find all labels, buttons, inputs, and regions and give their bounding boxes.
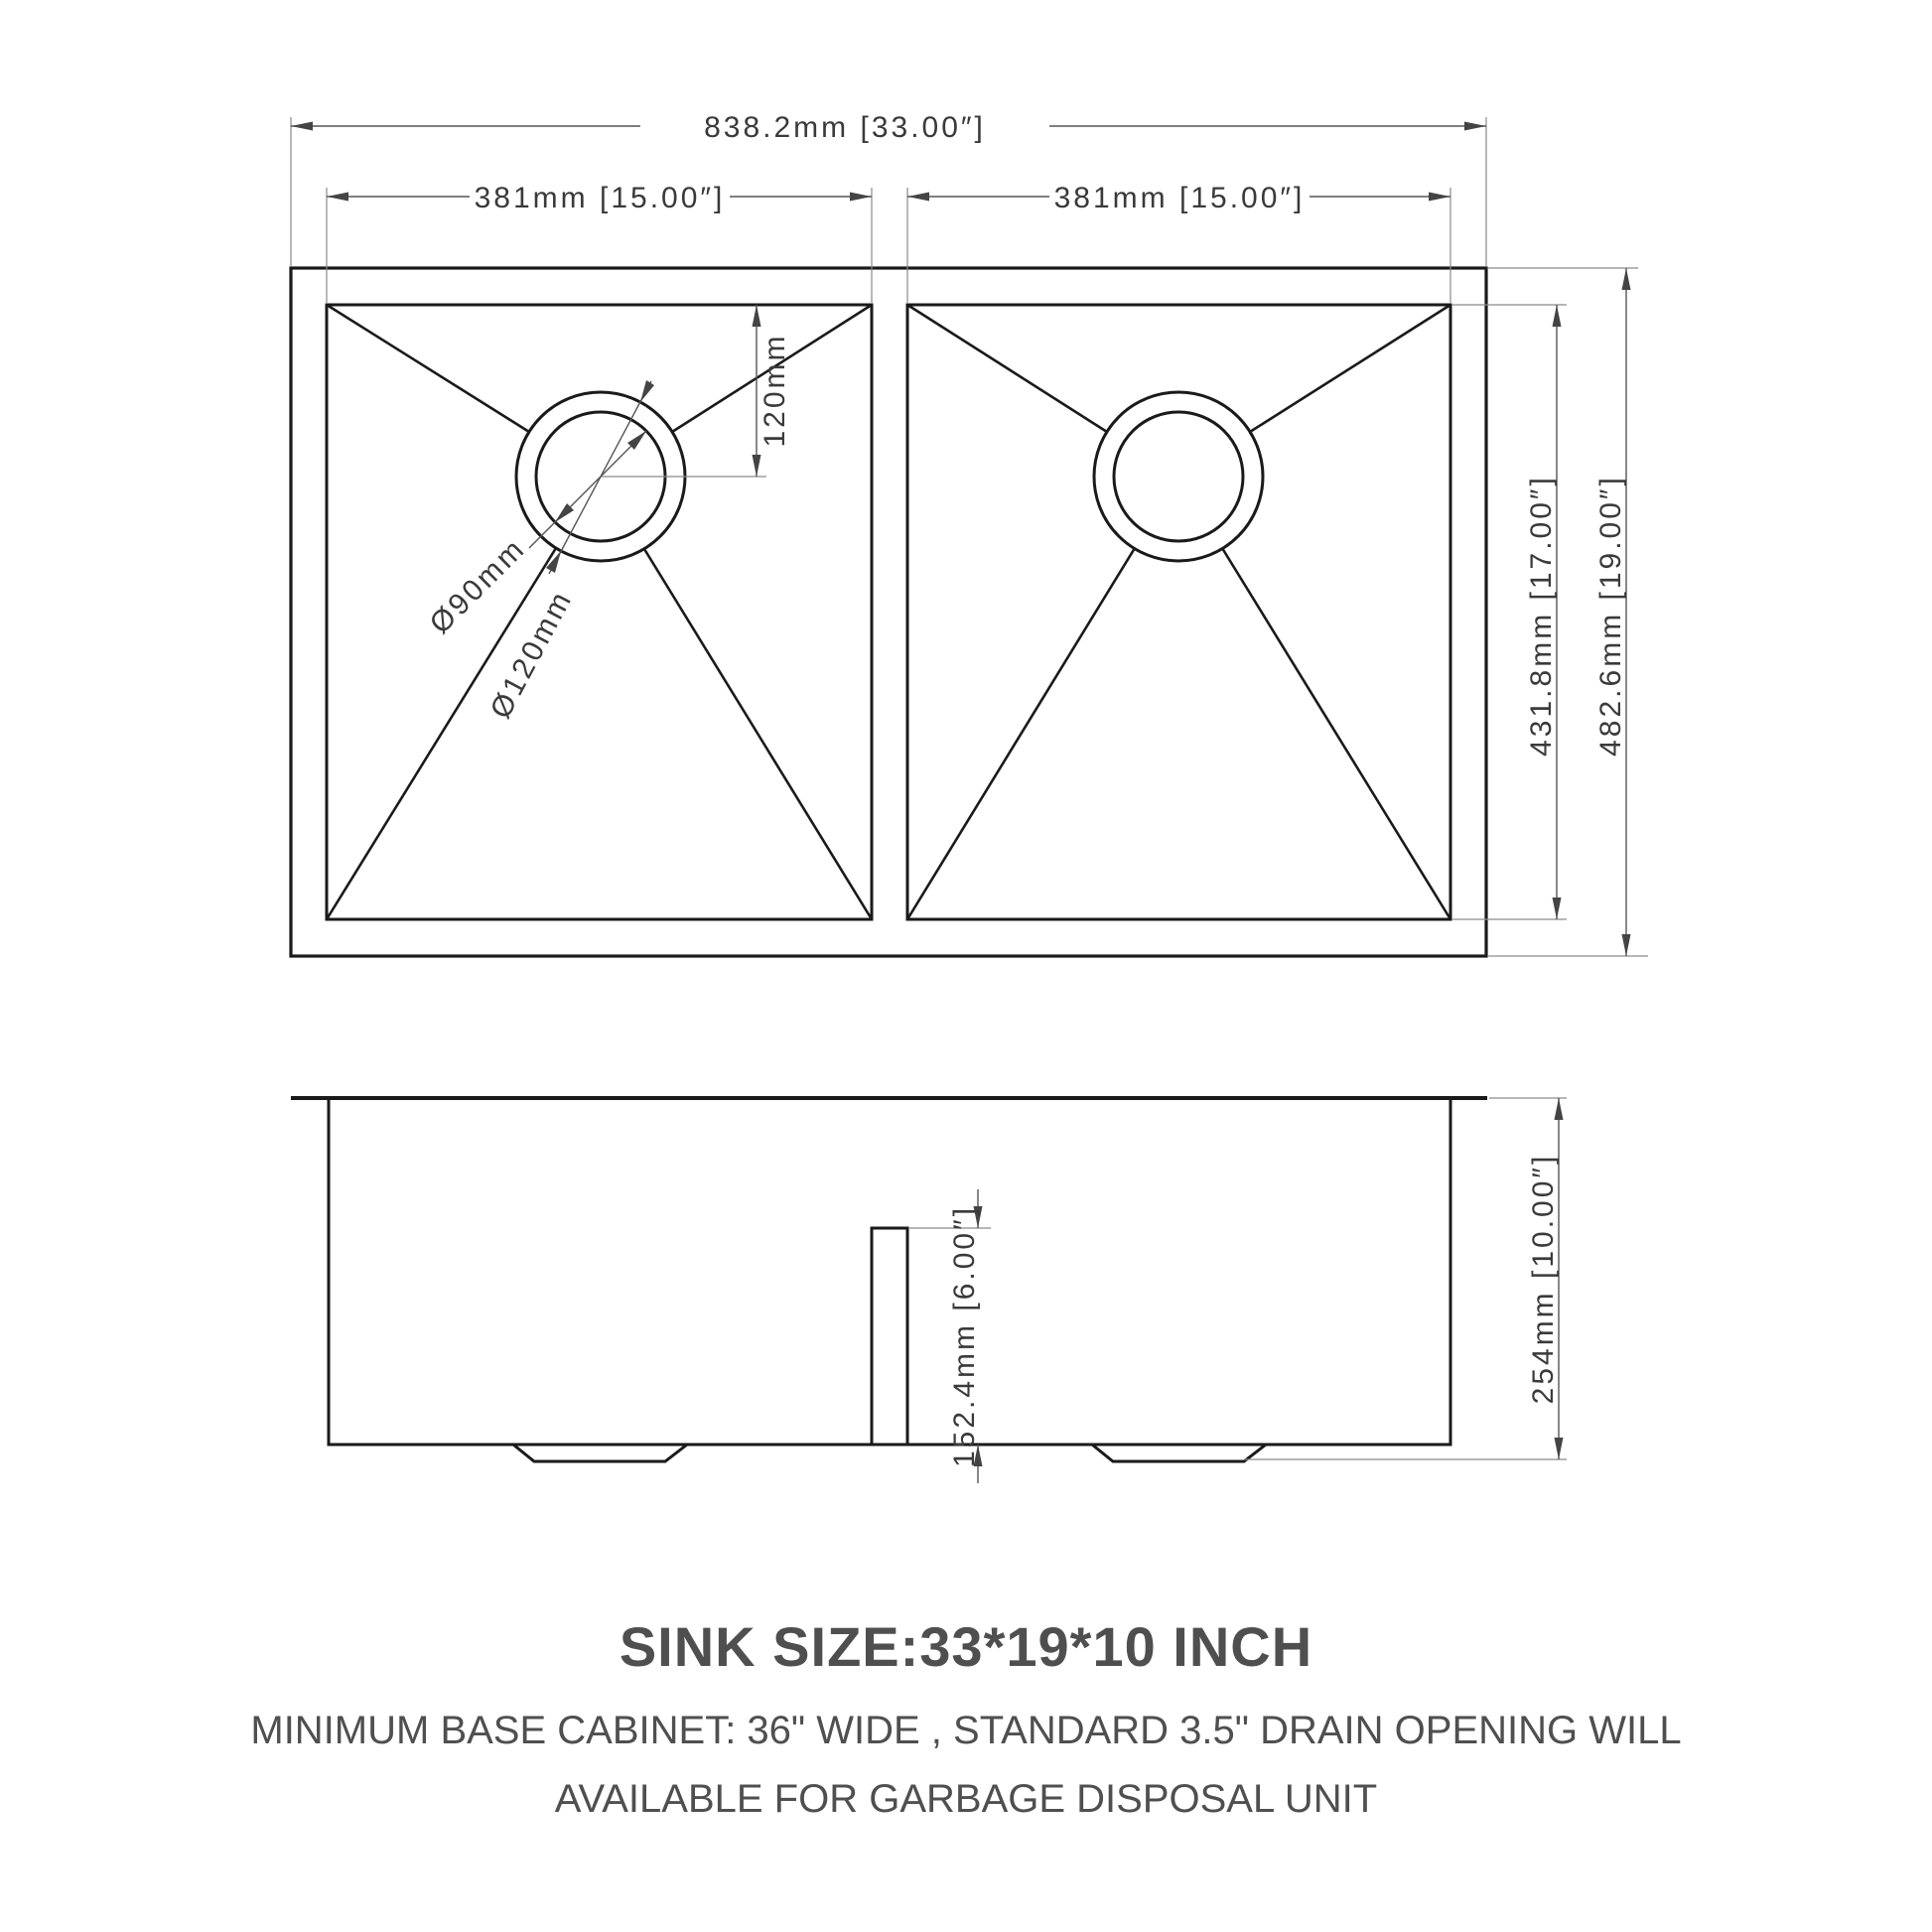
left-drain-fitting bbox=[513, 1445, 687, 1461]
dim-left-bowl-width: 381mm [15.00″] bbox=[327, 178, 872, 303]
dim-right-bowl-width: 381mm [15.00″] bbox=[907, 178, 1450, 303]
dim-right-bowl-width-label: 381mm [15.00″] bbox=[1054, 182, 1306, 214]
right-bowl-outline bbox=[907, 305, 1450, 919]
dim-drain-offset-label: 120mm bbox=[759, 333, 791, 447]
sink-spec-sheet: 838.2mm [33.00″] 381mm [15.00″] 381mm [1… bbox=[0, 0, 1932, 1932]
right-drain-outer-circle bbox=[1094, 392, 1263, 561]
dim-drain-inner-diameter-label: Ø90mm bbox=[424, 532, 532, 640]
sink-size-title: SINK SIZE:33*19*10 INCH bbox=[620, 1615, 1312, 1678]
dim-left-bowl-width-label: 381mm [15.00″] bbox=[475, 182, 726, 214]
notes: SINK SIZE:33*19*10 INCH MINIMUM BASE CAB… bbox=[250, 1615, 1681, 1821]
dim-divider-height: 152.4mm [6.00″] bbox=[909, 1189, 991, 1483]
dim-drain-offset: 120mm bbox=[601, 305, 791, 477]
side-view bbox=[291, 1098, 1487, 1461]
side-view-dimensions: 152.4mm [6.00″] 254mm [10.00″] bbox=[909, 1098, 1567, 1483]
dim-bowl-front-back-label: 431.8mm [17.00″] bbox=[1525, 475, 1558, 757]
dim-overall-front-back: 482.6mm [19.00″] bbox=[1488, 268, 1648, 956]
dim-drain-outer-diameter-label: Ø120mm bbox=[484, 585, 580, 724]
note-base-cabinet: MINIMUM BASE CABINET: 36" WIDE , STANDAR… bbox=[250, 1709, 1681, 1752]
dim-divider-height-label: 152.4mm [6.00″] bbox=[948, 1205, 981, 1467]
bowl-body-outline bbox=[329, 1098, 1450, 1445]
note-garbage-disposal: AVAILABLE FOR GARBAGE DISPOSAL UNIT bbox=[555, 1777, 1377, 1821]
dim-drain-inner-diameter: Ø90mm bbox=[424, 431, 646, 640]
dim-overall-width-label: 838.2mm [33.00″] bbox=[704, 111, 986, 144]
dim-bowl-front-back: 431.8mm [17.00″] bbox=[1452, 305, 1567, 919]
dim-overall-front-back-label: 482.6mm [19.00″] bbox=[1594, 475, 1627, 757]
right-drain-inner-circle bbox=[1114, 412, 1243, 541]
technical-drawing: 838.2mm [33.00″] 381mm [15.00″] 381mm [1… bbox=[0, 0, 1932, 1932]
top-view-dimensions: 838.2mm [33.00″] 381mm [15.00″] 381mm [1… bbox=[291, 105, 1648, 956]
dim-overall-depth-label: 254mm [10.00″] bbox=[1527, 1154, 1560, 1405]
dim-overall-depth: 254mm [10.00″] bbox=[1244, 1098, 1567, 1459]
right-drain-fitting bbox=[1092, 1445, 1266, 1461]
right-bowl-creases bbox=[907, 305, 1450, 919]
